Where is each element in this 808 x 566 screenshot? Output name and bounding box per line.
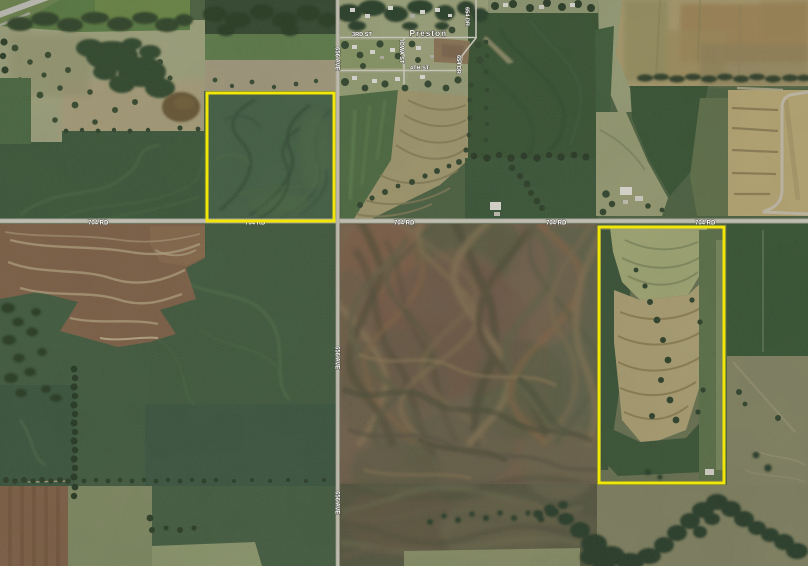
svg-text:656 AVE: 656 AVE — [333, 491, 339, 514]
svg-text:Preston: Preston — [410, 28, 447, 38]
svg-text:656 AVE: 656 AVE — [333, 346, 339, 369]
svg-text:4TH ST: 4TH ST — [410, 66, 430, 72]
svg-text:IOWA ST: IOWA ST — [398, 40, 404, 64]
svg-text:704 RD: 704 RD — [394, 221, 415, 227]
svg-text:704 RD: 704 RD — [546, 221, 567, 227]
svg-text:656 AVE: 656 AVE — [333, 47, 339, 70]
svg-text:654 DR: 654 DR — [455, 55, 461, 74]
svg-text:3RD ST: 3RD ST — [352, 32, 372, 38]
svg-text:704 RD: 704 RD — [88, 221, 109, 227]
svg-text:654 DR: 654 DR — [463, 7, 469, 26]
